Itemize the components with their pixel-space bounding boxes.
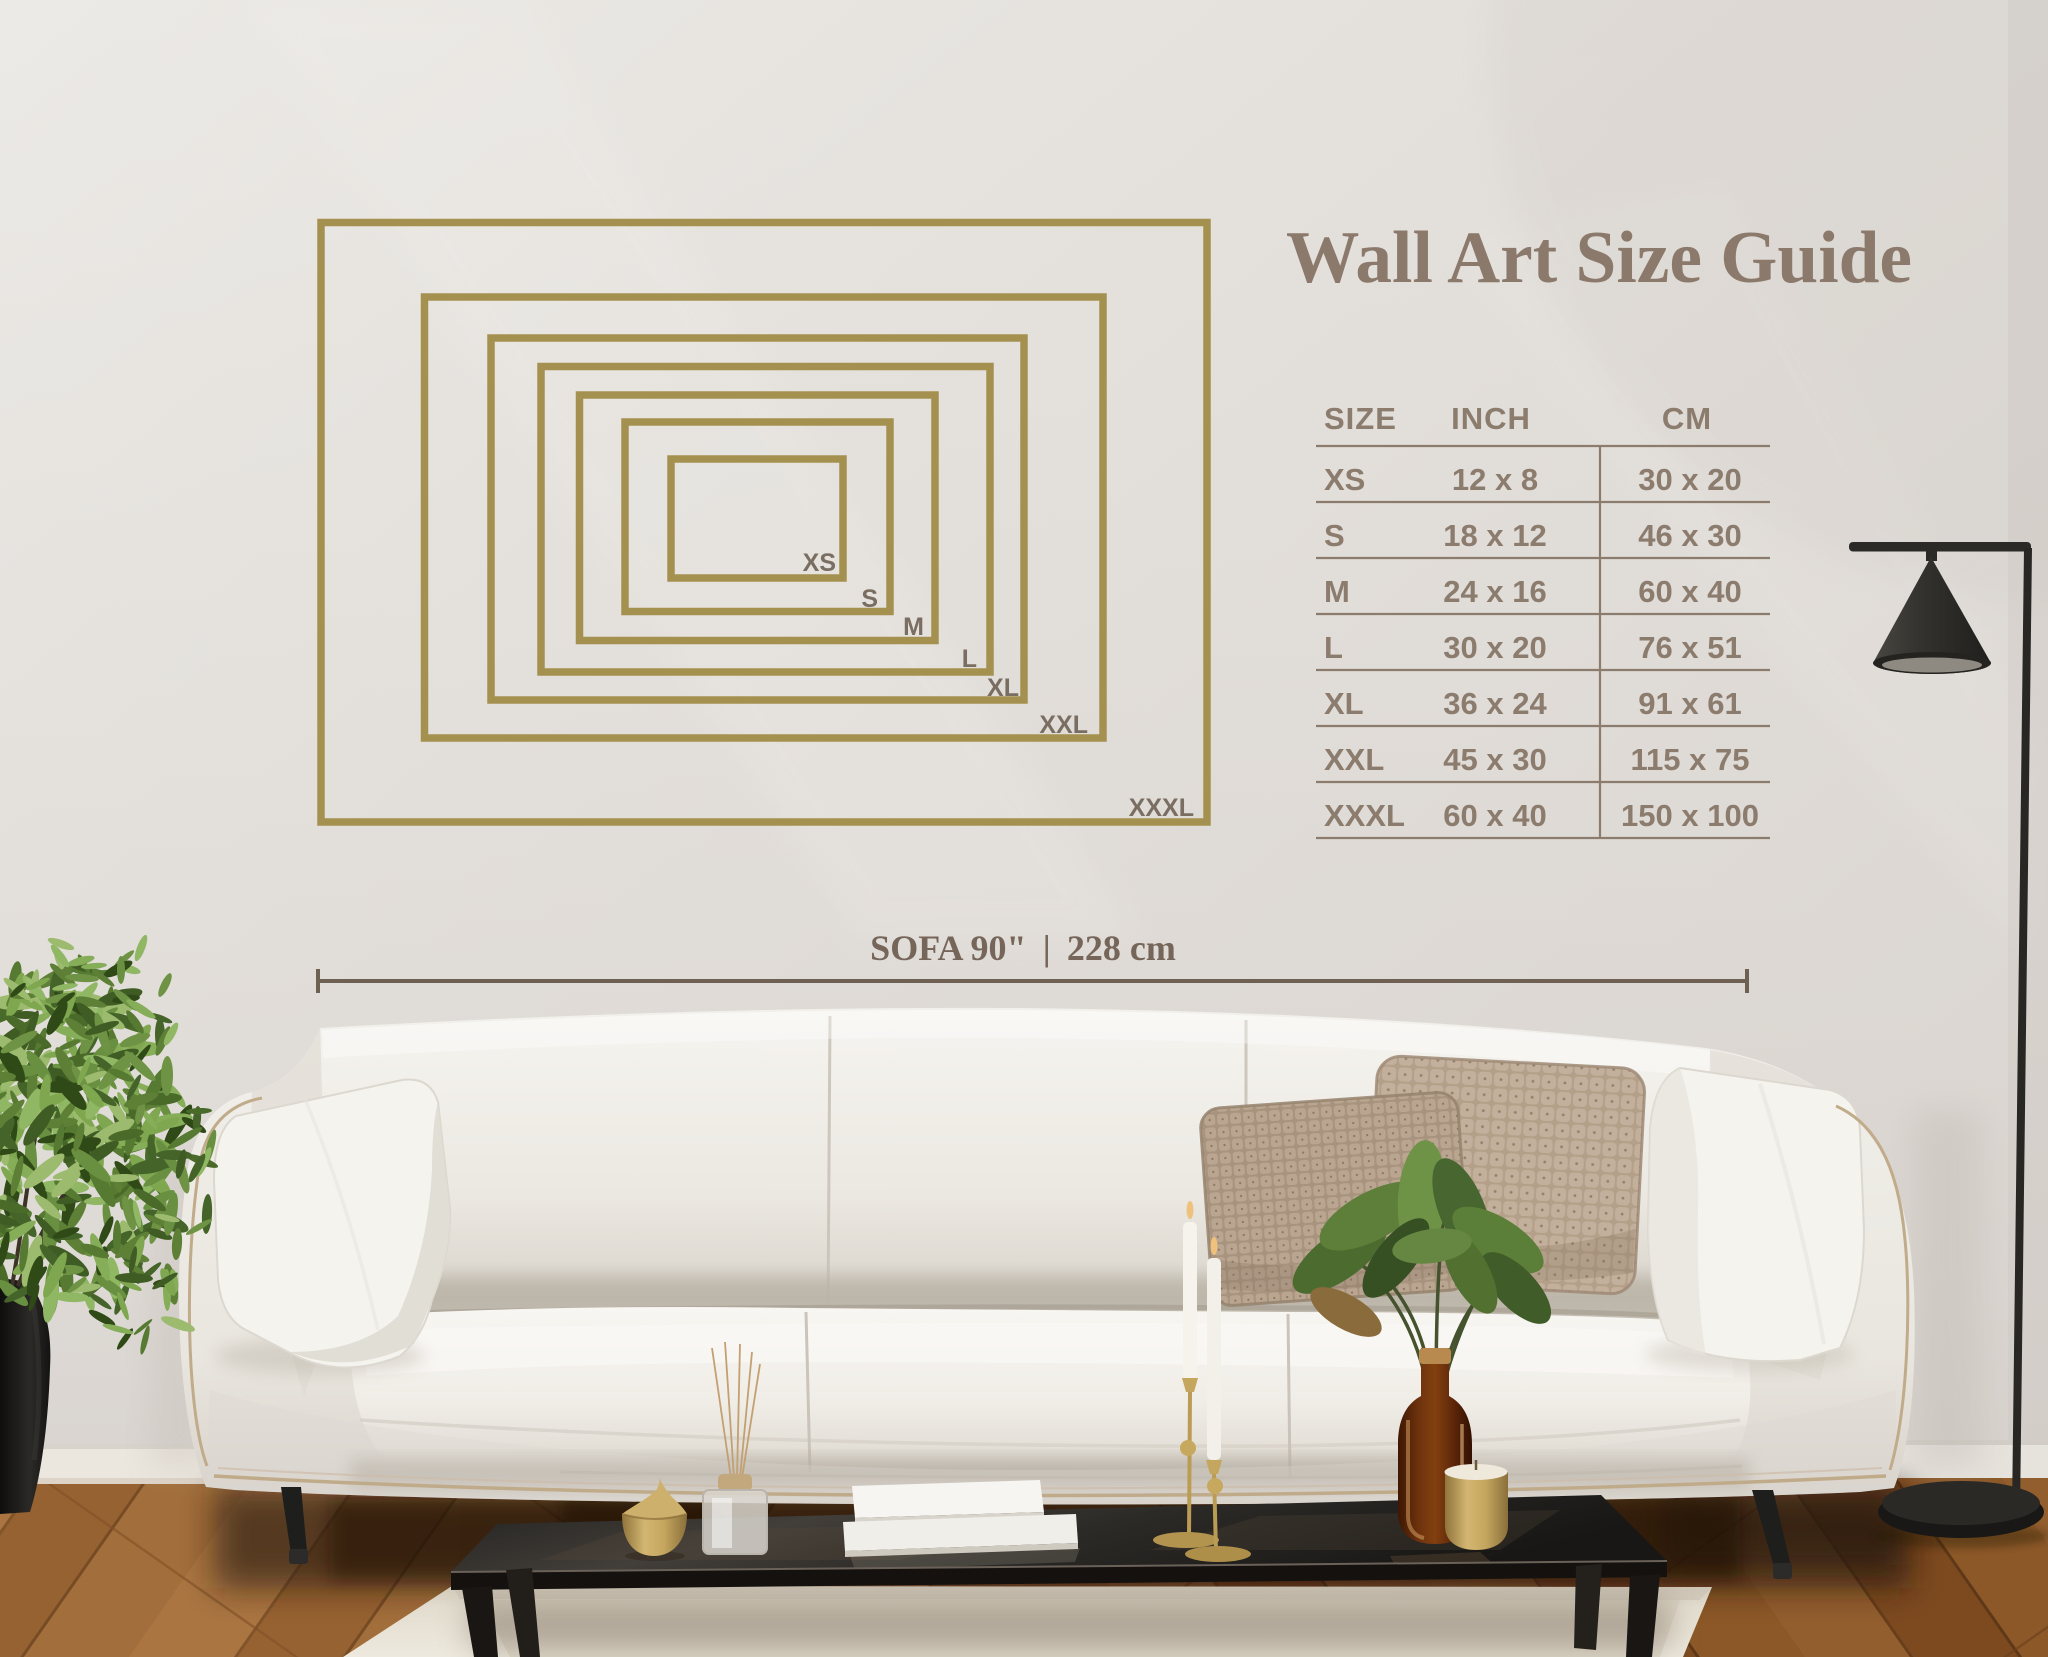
svg-text:115 x 75: 115 x 75 bbox=[1631, 742, 1750, 777]
svg-text:M: M bbox=[903, 613, 924, 641]
svg-text:L: L bbox=[962, 645, 977, 673]
svg-text:60 x 40: 60 x 40 bbox=[1443, 798, 1546, 833]
svg-text:XL: XL bbox=[987, 674, 1019, 702]
svg-text:60 x 40: 60 x 40 bbox=[1638, 574, 1741, 609]
svg-text:XXL: XXL bbox=[1039, 711, 1088, 739]
svg-text:L: L bbox=[1324, 630, 1343, 665]
svg-text:XS: XS bbox=[1324, 462, 1365, 497]
svg-text:SIZE: SIZE bbox=[1324, 401, 1397, 436]
svg-text:45 x 30: 45 x 30 bbox=[1443, 742, 1546, 777]
svg-text:Wall Art Size Guide: Wall Art Size Guide bbox=[1286, 217, 1912, 299]
svg-text:S: S bbox=[1324, 518, 1345, 553]
svg-text:SOFA 90" | 228 cm: SOFA 90" | 228 cm bbox=[870, 928, 1176, 968]
svg-text:91 x 61: 91 x 61 bbox=[1638, 686, 1741, 721]
svg-text:12 x 8: 12 x 8 bbox=[1452, 462, 1538, 497]
svg-text:INCH: INCH bbox=[1451, 401, 1531, 436]
svg-text:18 x 12: 18 x 12 bbox=[1443, 518, 1546, 553]
svg-text:XS: XS bbox=[803, 549, 836, 577]
svg-text:76 x 51: 76 x 51 bbox=[1638, 630, 1741, 665]
svg-text:M: M bbox=[1324, 574, 1350, 609]
svg-text:XXXL: XXXL bbox=[1129, 794, 1194, 822]
svg-text:30 x 20: 30 x 20 bbox=[1638, 462, 1741, 497]
svg-text:150 x 100: 150 x 100 bbox=[1621, 798, 1759, 833]
svg-text:24 x 16: 24 x 16 bbox=[1443, 574, 1546, 609]
svg-text:XXL: XXL bbox=[1324, 742, 1384, 777]
svg-text:XL: XL bbox=[1324, 686, 1364, 721]
svg-text:30 x 20: 30 x 20 bbox=[1443, 630, 1546, 665]
svg-text:XXXL: XXXL bbox=[1324, 798, 1405, 833]
svg-text:CM: CM bbox=[1662, 401, 1712, 436]
svg-text:46 x 30: 46 x 30 bbox=[1638, 518, 1741, 553]
svg-text:S: S bbox=[861, 585, 878, 613]
svg-text:36 x 24: 36 x 24 bbox=[1443, 686, 1547, 721]
